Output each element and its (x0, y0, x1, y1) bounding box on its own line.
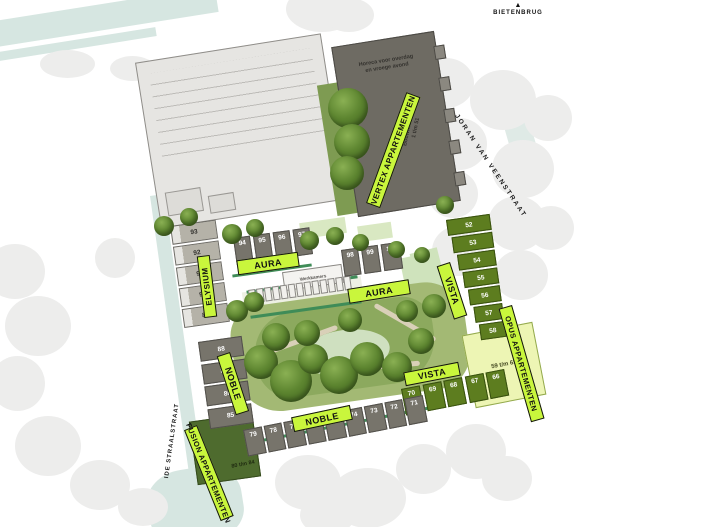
plot-block: 56 (468, 285, 502, 305)
vertex-balcony (433, 44, 446, 60)
plot-number: 93 (190, 228, 198, 236)
plot-number: 68 (450, 381, 458, 389)
tree (436, 196, 454, 214)
tree (408, 328, 434, 354)
plot-number: 56 (481, 291, 489, 299)
tree (180, 208, 198, 226)
plot-number: 58 (489, 327, 497, 335)
tree (330, 156, 364, 190)
context-foliage (524, 95, 572, 141)
plot-number: 71 (410, 399, 418, 407)
plot-block: 79 (243, 426, 266, 456)
tree (388, 241, 405, 258)
context-foliage (0, 356, 45, 411)
plot-number: 52 (465, 221, 473, 229)
plot-number: 57 (485, 309, 493, 317)
tree (300, 231, 319, 250)
vertex-balcony (453, 171, 466, 187)
tree (414, 247, 430, 263)
plot-block: 72 (384, 399, 407, 429)
context-foliage (324, 0, 374, 32)
plot-number: 53 (469, 239, 477, 247)
context-foliage (494, 250, 548, 300)
hall-roof-lines (149, 48, 325, 162)
tree (262, 323, 290, 351)
plot-number: 72 (390, 403, 398, 411)
context-foliage (396, 444, 451, 494)
plot-block: 78 (263, 423, 286, 453)
plot-block: 68 (443, 377, 467, 407)
plot-number: 79 (249, 430, 257, 438)
fusion-range: 80 t/m 84 (231, 459, 255, 469)
plot-block: 98 (341, 248, 362, 277)
tree (244, 292, 264, 312)
plot-number: 66 (492, 373, 500, 381)
plot-number: 73 (370, 407, 378, 415)
compass-label: BIETENBRUG (478, 10, 558, 16)
context-foliage (5, 296, 71, 356)
plot-number: 95 (258, 237, 266, 245)
context-foliage (0, 244, 45, 299)
plot-number: 78 (269, 427, 277, 435)
tree (328, 88, 368, 128)
context-foliage (95, 238, 135, 278)
plot-number: 55 (477, 274, 485, 282)
plot-number: 99 (366, 249, 374, 257)
plot-block: 73 (364, 403, 387, 433)
tree (154, 216, 174, 236)
tree (294, 320, 320, 346)
plot-number: 96 (278, 234, 286, 242)
industrial-hall (135, 33, 347, 228)
context-foliage (40, 50, 95, 78)
tree (222, 224, 242, 244)
vertex-balcony (448, 139, 461, 155)
plot-number: 98 (346, 251, 354, 259)
vertex-balcony (438, 76, 451, 92)
context-foliage (118, 488, 168, 526)
plot-number: 88 (217, 345, 225, 353)
horeca-note: Horeca voor overdag en vroege avond (343, 51, 430, 78)
tree (352, 234, 369, 251)
plot-number: 85 (226, 412, 234, 420)
context-foliage (528, 206, 574, 250)
tree (338, 308, 362, 332)
plot-number: 69 (428, 385, 436, 393)
context-foliage (15, 416, 81, 476)
plot-block: 69 (422, 381, 446, 411)
street-name-left: IDE STRAALSTRAAT (164, 403, 181, 479)
context-foliage (482, 456, 532, 501)
compass: ▲ BIETENBRUG (478, 2, 558, 16)
tree (326, 227, 344, 245)
tree (350, 342, 384, 376)
tree (396, 300, 418, 322)
tree (246, 219, 264, 237)
plot-number: 54 (473, 256, 481, 264)
plot-number: 67 (471, 377, 479, 385)
north-arrow-icon: ▲ (478, 2, 558, 10)
site-plan-canvas: Horeca voor overdag en vroege avond Bouw… (0, 0, 720, 527)
hall-annex (208, 192, 236, 214)
context-foliage (300, 495, 355, 527)
tree (334, 124, 370, 160)
plot-block: 67 (464, 373, 488, 403)
tree (422, 294, 446, 318)
